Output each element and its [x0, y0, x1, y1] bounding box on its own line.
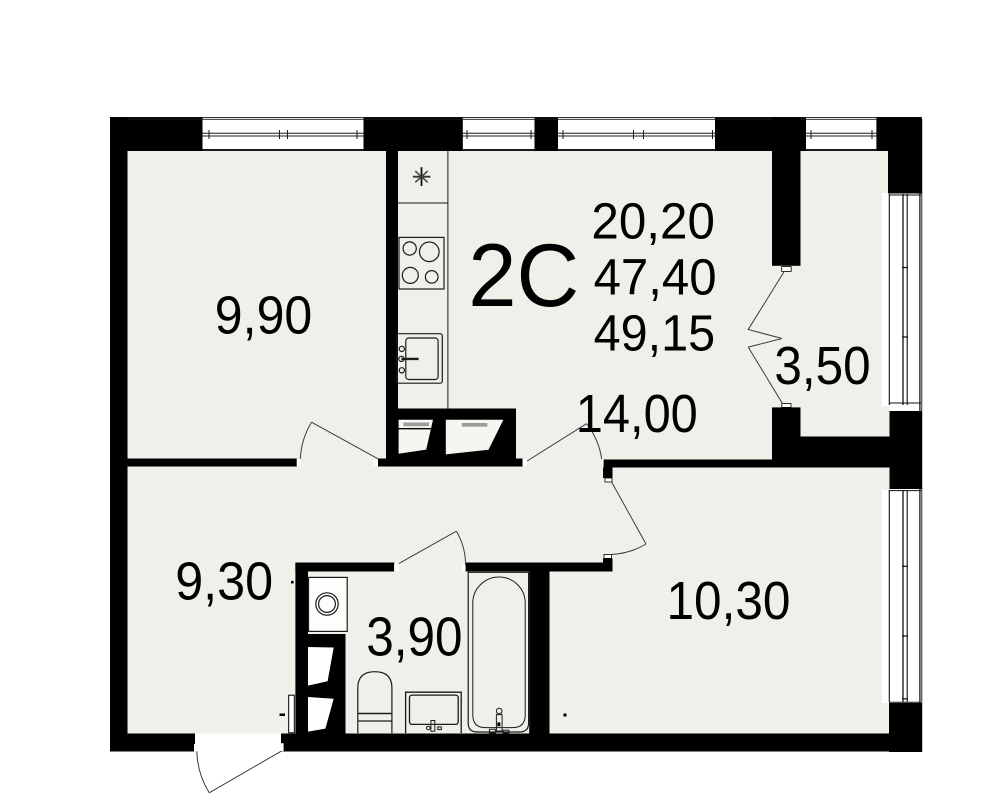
svg-text:14,00: 14,00: [576, 384, 698, 444]
svg-text:49,15: 49,15: [594, 305, 716, 362]
svg-text:47,40: 47,40: [594, 249, 717, 306]
svg-text:3,50: 3,50: [774, 336, 870, 396]
svg-text:10,30: 10,30: [667, 571, 791, 631]
svg-text:2C: 2C: [468, 225, 579, 325]
svg-text:9,90: 9,90: [215, 285, 312, 345]
svg-text:9,30: 9,30: [175, 552, 273, 612]
svg-text:20,20: 20,20: [591, 193, 715, 250]
svg-text:3,90: 3,90: [366, 605, 462, 667]
